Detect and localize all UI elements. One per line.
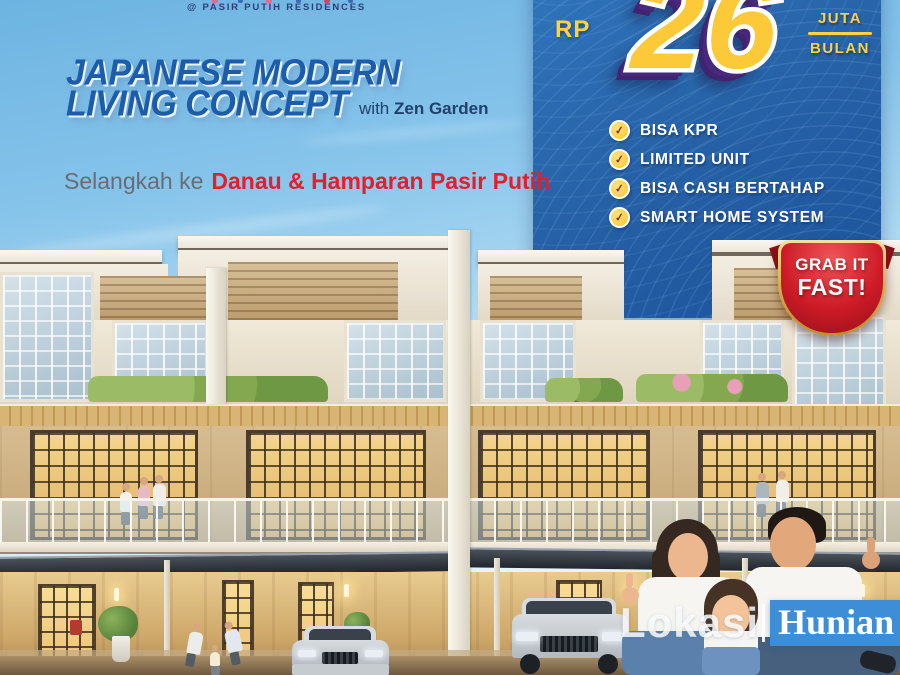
- feature-label: BISA CASH BERTAHAP: [640, 180, 825, 198]
- price-amount: 26 26: [593, 0, 819, 108]
- tagline-highlight: Danau & Hamparan Pasir Putih: [211, 168, 550, 195]
- car-bumper: [292, 664, 389, 675]
- car-grille: [540, 636, 598, 652]
- zen-garden-note: with Zen Garden: [359, 99, 488, 119]
- zen-name: Zen Garden: [394, 99, 488, 118]
- price-unit-top: JUTA: [805, 10, 875, 27]
- feature-item: ✓ SMART HOME SYSTEM: [609, 207, 825, 228]
- dad-face: [770, 517, 816, 571]
- wall-sconce: [114, 588, 119, 601]
- plant-hedge: [636, 374, 788, 402]
- roof-terrace: [490, 276, 582, 320]
- price-unit-bottom: BULAN: [805, 40, 875, 57]
- glass-wall: [344, 320, 446, 402]
- divider-wall: [206, 268, 226, 404]
- mom-face: [668, 533, 708, 581]
- headline-line2: LIVING CONCEPT: [66, 88, 348, 121]
- brand-subtitle: @ PASIR PUTIH RESIDENCES: [164, 2, 389, 13]
- price-amount-fill: 26: [589, 0, 823, 98]
- divider-wall: [448, 230, 470, 675]
- feature-item: ✓ LIMITED UNIT: [609, 149, 825, 170]
- feature-label: SMART HOME SYSTEM: [640, 209, 824, 227]
- check-icon: ✓: [608, 206, 631, 229]
- check-icon: ✓: [608, 177, 631, 200]
- child: [210, 652, 220, 666]
- feature-list: ✓ BISA KPR ✓ LIMITED UNIT ✓ BISA CASH BE…: [609, 120, 825, 236]
- wall-sconce: [344, 584, 349, 597]
- plant-hedge: [545, 378, 623, 402]
- mailbox: [70, 620, 82, 635]
- car-sedan: [292, 624, 389, 675]
- feature-item: ✓ BISA KPR: [609, 120, 825, 141]
- badge-gold-rim: GRAB IT FAST!: [778, 240, 886, 336]
- girl-overalls: [702, 647, 760, 675]
- badge-line1: GRAB IT: [795, 256, 868, 275]
- roof-terrace: [100, 276, 218, 320]
- tagline-prefix: Selangkah ke: [64, 168, 203, 195]
- price-unit: JUTA BULAN: [805, 10, 875, 57]
- zen-prefix: with: [359, 99, 389, 118]
- dad-thumb: [867, 537, 875, 553]
- check-icon: ✓: [608, 119, 631, 142]
- watermark-right: Hunian: [770, 600, 900, 646]
- glass-wall: [0, 272, 94, 402]
- watermark-left: Lokasi: [620, 599, 759, 647]
- car-headlight: [298, 650, 316, 657]
- fraction-line: [808, 32, 872, 35]
- badge-line2: FAST!: [798, 275, 867, 300]
- feature-label: BISA KPR: [640, 122, 718, 140]
- car-suv: [512, 598, 628, 675]
- car-wheel: [520, 654, 540, 674]
- car-headlight: [516, 632, 538, 641]
- watermark: Lokasi Hunian: [620, 599, 900, 647]
- grab-it-fast-badge: GRAB IT FAST!: [778, 240, 886, 336]
- property-ad-poster: @ PASIR PUTIH RESIDENCES JAPANESE MODERN…: [0, 0, 900, 675]
- car-headlight: [365, 650, 383, 657]
- headline: JAPANESE MODERN LIVING CONCEPT with Zen …: [66, 57, 488, 119]
- roof-terrace: [228, 262, 398, 320]
- tagline: Selangkah ke Danau & Hamparan Pasir Puti…: [64, 168, 550, 195]
- car-grille: [322, 652, 358, 664]
- badge-face: GRAB IT FAST!: [781, 243, 883, 333]
- feature-item: ✓ BISA CASH BERTAHAP: [609, 178, 825, 199]
- dad-thumbs-up: [862, 551, 880, 569]
- plant-pot: [112, 636, 130, 662]
- family-photo: [612, 505, 900, 675]
- car-windshield: [526, 601, 612, 615]
- feature-label: LIMITED UNIT: [640, 151, 750, 169]
- check-icon: ✓: [608, 148, 631, 171]
- mom-thumb: [626, 573, 633, 588]
- watermark-divider: [762, 604, 765, 642]
- currency-label: RP: [555, 16, 590, 44]
